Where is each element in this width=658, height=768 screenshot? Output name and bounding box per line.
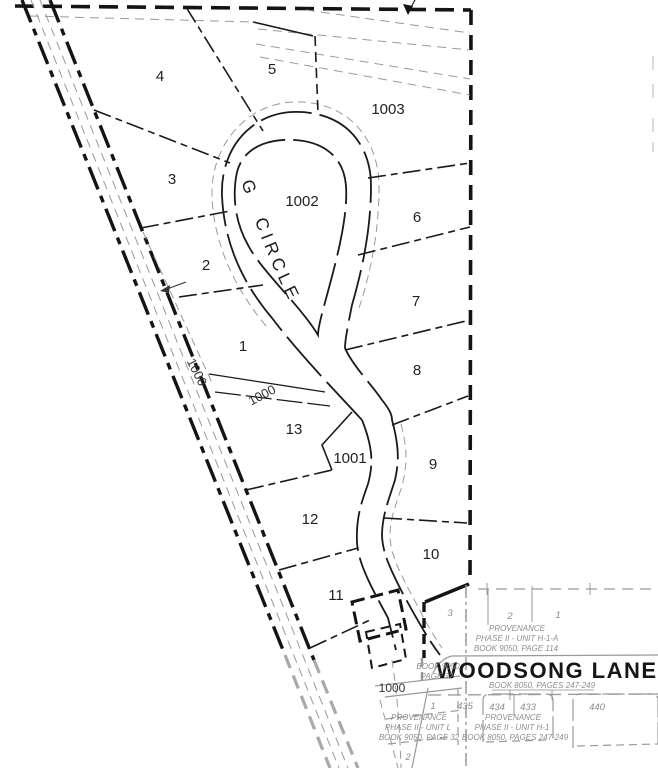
h1a-phase: PHASE II - UNIT H-1-A <box>476 634 559 643</box>
lot-lines <box>94 7 470 648</box>
lot-1001-label: 1001 <box>333 450 366 467</box>
lot-12-label: 12 <box>302 511 319 528</box>
lot-2-label: 2 <box>202 257 210 274</box>
line-13-12 <box>246 470 332 490</box>
line-9-10 <box>384 518 467 523</box>
lot-8-label: 8 <box>413 362 421 379</box>
common-1000-south-label: 1000 <box>379 681 406 695</box>
h1-name: PROVENANCE <box>485 713 542 722</box>
line-8-9 <box>392 396 468 425</box>
h1a-lot-1: 1 <box>555 610 560 621</box>
common-1000-strip-label: 1000 <box>246 382 279 409</box>
lot-11-label: 11 <box>328 587 344 604</box>
h1a-book: BOOK 9050, PAGE 114 <box>474 644 559 653</box>
unit-l-name: PROVENANCE <box>391 713 448 722</box>
lot-9-label: 9 <box>429 456 437 473</box>
line-2-1 <box>179 285 263 297</box>
line-1003-6 <box>368 163 470 178</box>
line-4-5 <box>186 7 263 131</box>
h1a-lot-2: 2 <box>506 611 513 622</box>
lane-book: BOOK 8050, PAGES 247-249 <box>489 681 596 690</box>
lot-labels: 4 5 1003 3 1002 6 2 7 1 8 13 1001 9 12 1… <box>156 61 440 604</box>
common-1000-west-road-label: 1000 <box>184 356 210 389</box>
lot-13-label: 13 <box>286 421 303 438</box>
h1a-name: PROVENANCE <box>489 624 546 633</box>
lot-5-label: 5 <box>268 61 276 78</box>
h1-phase: PHASE II - UNIT H-1 <box>475 723 550 732</box>
line-11-south <box>310 620 370 648</box>
west-road <box>22 0 358 768</box>
lot-4-label: 4 <box>156 68 164 85</box>
lot-1-label: 1 <box>239 338 247 355</box>
unit-l-lot-2: 2 <box>404 752 411 763</box>
unit-l-book: BOOK 9050, PAGE 32 <box>379 733 460 742</box>
reference-lines <box>30 10 470 95</box>
h1-lot-440: 440 <box>589 702 606 713</box>
road-arrowhead <box>160 285 170 293</box>
lot-1003-label: 1003 <box>371 101 404 118</box>
lot-3-label: 3 <box>168 171 176 188</box>
lane-book-reference: BOOK 8050, PAGES 247-249 <box>489 681 596 690</box>
h1a-lot-3: 3 <box>447 608 453 619</box>
line-5-1003 <box>315 36 318 113</box>
adjacent-plat-h1: 435 434 433 440 PROVENANCE PHASE II - UN… <box>457 701 606 742</box>
lot-6-label: 6 <box>413 209 421 226</box>
adjacent-plat-h1a: 3 2 1 PROVENANCE PHASE II - UNIT H-1-A B… <box>447 608 560 653</box>
circle-inner-island <box>235 140 347 335</box>
h1-lot-435: 435 <box>457 701 474 712</box>
lot-10-label: 10 <box>423 546 440 563</box>
book-ref-line2: PAGE 32 <box>421 672 454 681</box>
unit-l-lot-1: 1 <box>430 701 435 712</box>
common-area-labels: 1000 1000 1000 <box>184 356 406 695</box>
book-ref-line1: BOOK 9050 <box>416 662 460 671</box>
h1-lot-434: 434 <box>489 702 505 713</box>
line-3-2 <box>141 211 230 228</box>
line-12-11 <box>279 548 358 570</box>
line-3-4 <box>94 110 230 163</box>
h1-lot-433: 433 <box>520 702 537 713</box>
unit-l-phase: PHASE II - UNIT L <box>385 723 451 732</box>
lot-1002-label: 1002 <box>285 193 318 210</box>
line-7-8 <box>345 320 470 350</box>
woodsong-lane-name: WOODSONG LANE <box>436 658 657 683</box>
circle-outer-edge <box>222 112 392 420</box>
h1-book: BOOK 8050, PAGES 247-249 <box>462 733 569 742</box>
lot-7-label: 7 <box>412 293 420 310</box>
plat-map: 4 5 1003 3 1002 6 2 7 1 8 13 1001 9 12 1… <box>0 0 658 768</box>
